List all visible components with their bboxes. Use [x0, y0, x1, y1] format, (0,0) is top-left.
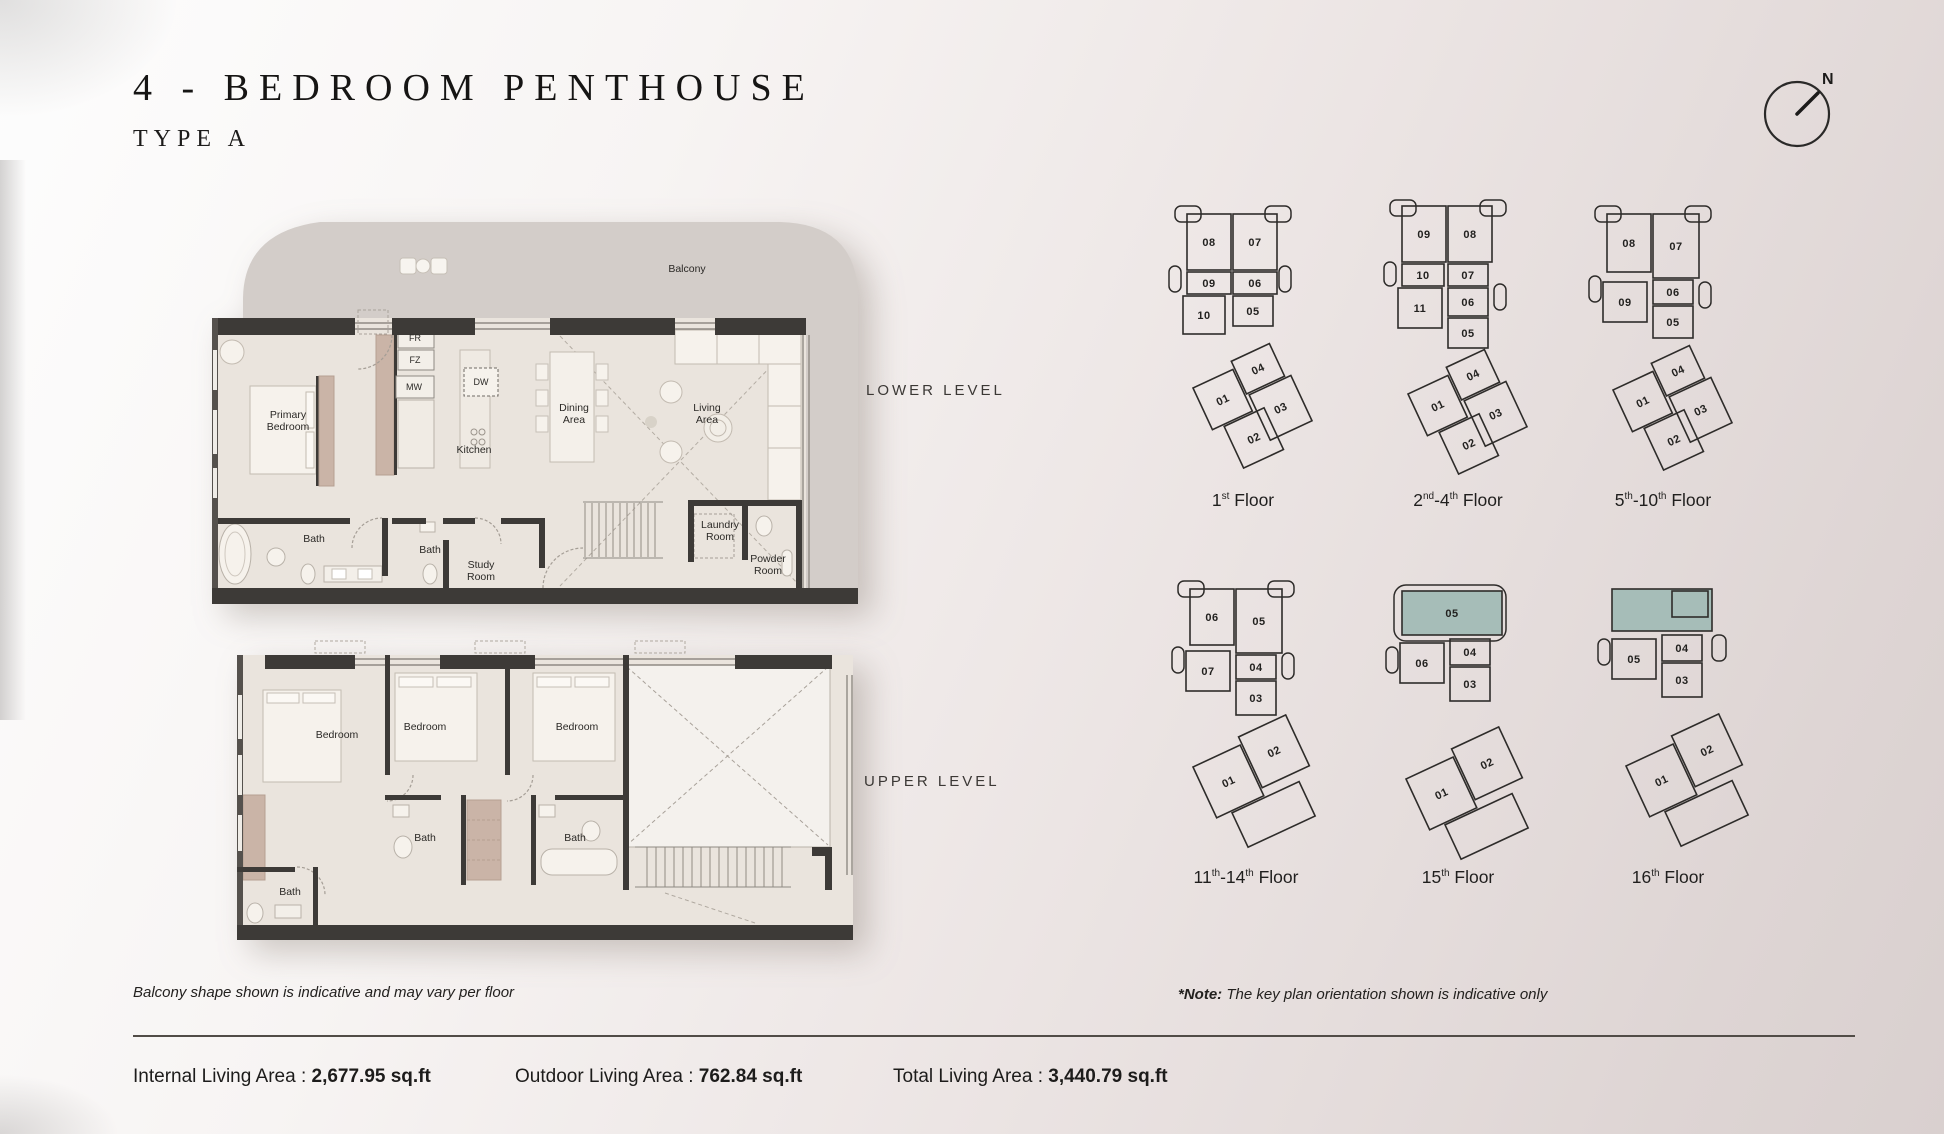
keyplan-label: 11th-14th Floor [1166, 867, 1326, 888]
keyplan-note-prefix: *Note: [1178, 986, 1222, 1003]
svg-text:07: 07 [1461, 270, 1474, 282]
svg-text:09: 09 [1618, 297, 1631, 309]
svg-text:01: 01 [1653, 773, 1670, 789]
corner-shade-bottom [0, 1074, 120, 1134]
svg-text:07: 07 [1201, 666, 1214, 678]
svg-text:04: 04 [1463, 647, 1477, 659]
brochure-page: 4 - BEDROOM PENTHOUSE TYPE A N [0, 0, 1944, 1134]
svg-text:03: 03 [1675, 675, 1688, 687]
total-living-area: Total Living Area : 3,440.79 sq.ft [893, 1066, 1168, 1088]
keyplan-15th-floor: 050604030102 15th Floor [1378, 575, 1538, 897]
svg-text:01: 01 [1635, 394, 1652, 410]
lower-level-drawing [130, 200, 870, 620]
svg-text:06: 06 [1205, 612, 1218, 624]
svg-text:03: 03 [1272, 401, 1289, 417]
svg-text:03: 03 [1463, 679, 1476, 691]
keyplan-label: 15th Floor [1378, 867, 1538, 888]
svg-text:05: 05 [1252, 616, 1265, 628]
svg-text:02: 02 [1479, 756, 1496, 772]
internal-living-area: Internal Living Area : 2,677.95 sq.ft [133, 1066, 431, 1088]
keyplan-note-text: The key plan orientation shown is indica… [1222, 986, 1547, 1003]
keyplan-5th-10th-floor: 080709060501040203 5th-10th Floor [1583, 198, 1743, 520]
svg-text:07: 07 [1669, 241, 1682, 253]
svg-text:09: 09 [1202, 278, 1215, 290]
svg-text:07: 07 [1248, 237, 1261, 249]
svg-text:04: 04 [1675, 643, 1689, 655]
svg-text:01: 01 [1220, 774, 1237, 790]
svg-text:05: 05 [1246, 306, 1259, 318]
svg-text:02: 02 [1699, 743, 1716, 759]
svg-text:05: 05 [1445, 608, 1458, 620]
edge-shade [0, 160, 26, 720]
svg-text:08: 08 [1202, 237, 1215, 249]
keyplan-16th-floor: 0504030102 16th Floor [1588, 575, 1748, 897]
svg-text:02: 02 [1246, 431, 1263, 447]
svg-text:03: 03 [1487, 407, 1504, 423]
compass-n-label: N [1822, 71, 1834, 88]
svg-text:11: 11 [1414, 303, 1427, 315]
upper-level-label: UPPER LEVEL [864, 773, 1000, 790]
lower-level-plan: BalconyPrimary BedroomFRFZMWDWKitchenDin… [130, 200, 870, 620]
upper-level-plan: BedroomBedroomBedroomBathBathBath [235, 635, 865, 950]
svg-text:01: 01 [1215, 392, 1232, 408]
svg-text:05: 05 [1461, 328, 1474, 340]
svg-text:02: 02 [1266, 744, 1283, 760]
keyplan-label: 16th Floor [1588, 867, 1748, 888]
svg-text:08: 08 [1622, 238, 1635, 250]
keyplan-label: 2nd-4th Floor [1378, 490, 1538, 511]
keyplan-label: 1st Floor [1163, 490, 1323, 511]
svg-text:02: 02 [1666, 433, 1683, 449]
keyplan-11th-14th-floor: 06050704030102 11th-14th Floor [1166, 575, 1326, 897]
svg-text:06: 06 [1248, 278, 1261, 290]
footer-divider [133, 1035, 1855, 1037]
svg-text:01: 01 [1433, 786, 1450, 802]
svg-text:03: 03 [1692, 403, 1709, 419]
keyplan-1st-floor: 08070906100501040203 1st Floor [1163, 198, 1323, 520]
svg-text:06: 06 [1461, 297, 1474, 309]
lower-level-label: LOWER LEVEL [866, 382, 1005, 399]
svg-text:04: 04 [1249, 662, 1263, 674]
keyplan-note: *Note: The key plan orientation shown is… [1178, 986, 1547, 1003]
svg-text:04: 04 [1465, 367, 1482, 384]
svg-text:06: 06 [1666, 287, 1679, 299]
page-title: 4 - BEDROOM PENTHOUSE [133, 66, 815, 110]
svg-text:09: 09 [1417, 229, 1430, 241]
svg-text:03: 03 [1249, 693, 1262, 705]
svg-text:08: 08 [1463, 229, 1476, 241]
svg-text:10: 10 [1197, 310, 1210, 322]
svg-text:06: 06 [1415, 658, 1428, 670]
outdoor-living-area: Outdoor Living Area : 762.84 sq.ft [515, 1066, 802, 1088]
keyplan-label: 5th-10th Floor [1583, 490, 1743, 511]
svg-text:10: 10 [1416, 270, 1429, 282]
svg-text:01: 01 [1430, 398, 1447, 414]
svg-text:05: 05 [1627, 654, 1640, 666]
svg-text:04: 04 [1670, 363, 1687, 380]
north-compass-icon: N [1750, 62, 1850, 162]
upper-level-drawing [235, 635, 865, 950]
page-subtitle: TYPE A [133, 126, 251, 153]
balcony-note: Balcony shape shown is indicative and ma… [133, 984, 514, 1001]
svg-text:05: 05 [1666, 317, 1679, 329]
svg-text:02: 02 [1461, 437, 1478, 453]
keyplan-2nd-4th-floor: 0908100711060501040203 2nd-4th Floor [1378, 198, 1538, 520]
svg-text:04: 04 [1250, 361, 1267, 378]
